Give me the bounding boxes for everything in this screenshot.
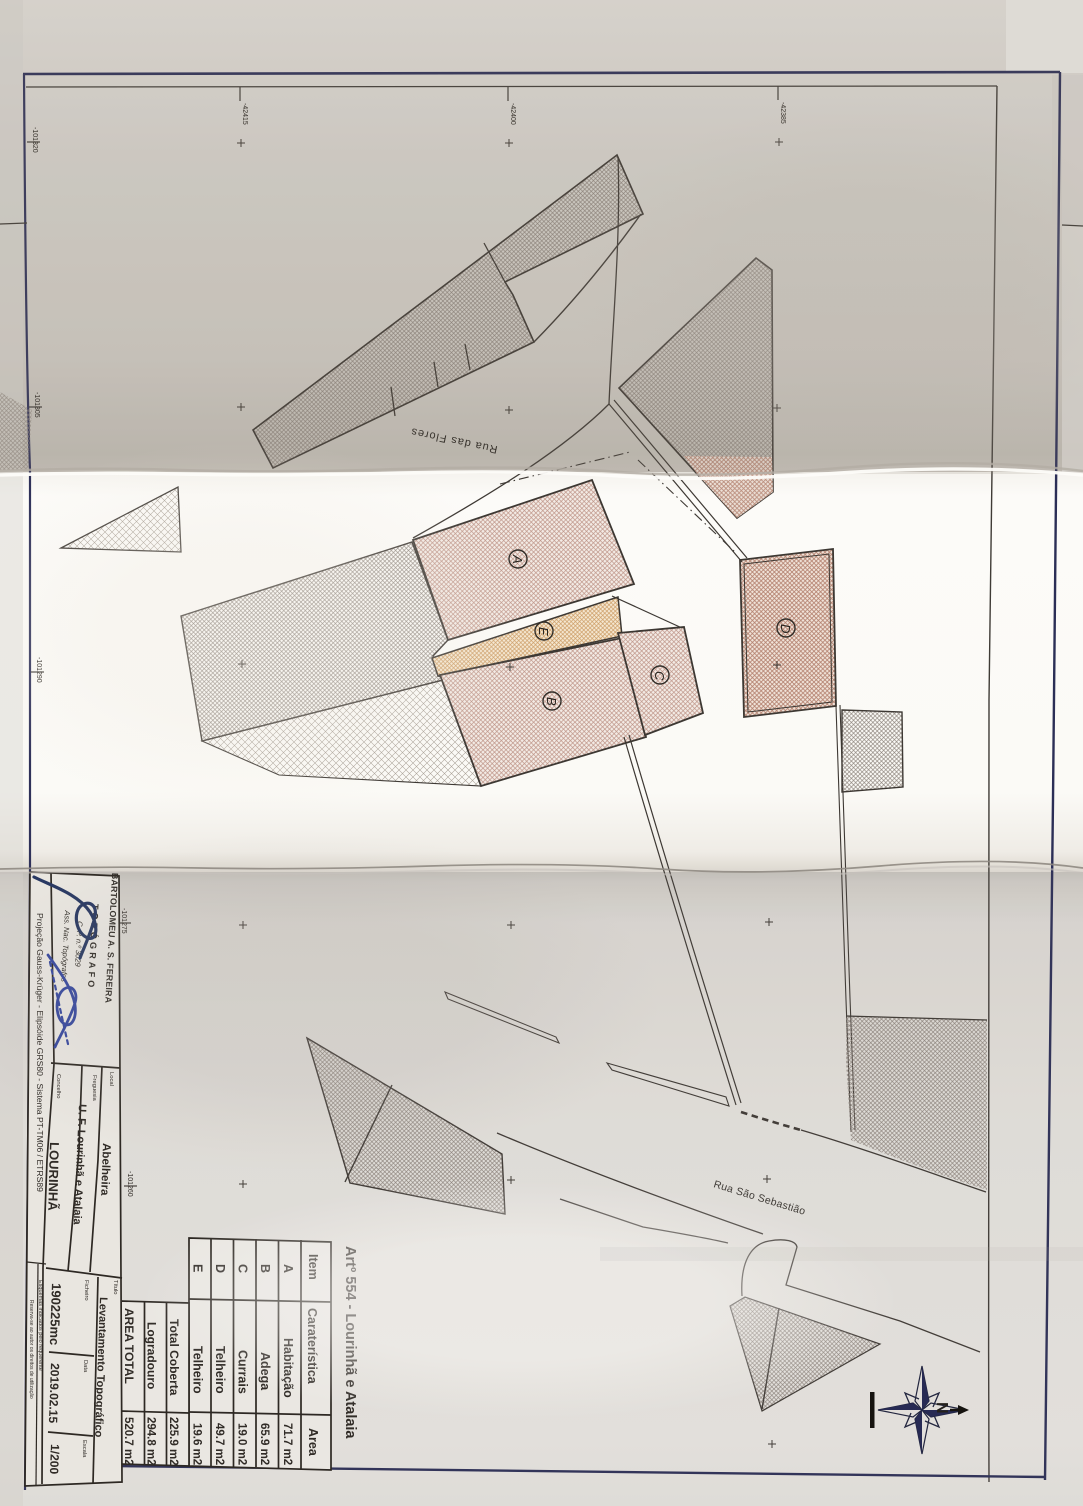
svg-text:N: N bbox=[933, 1402, 950, 1414]
